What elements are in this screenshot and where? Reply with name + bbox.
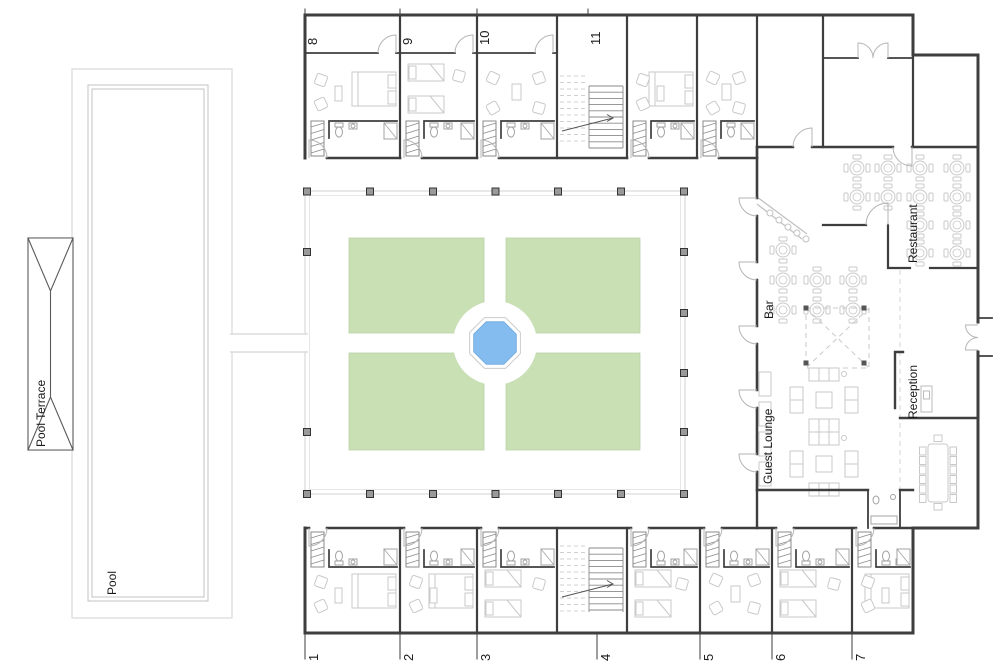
toilet-tank [507, 561, 515, 565]
furniture [636, 602, 643, 615]
chair [532, 577, 545, 590]
furniture [335, 588, 342, 603]
chair [827, 577, 840, 590]
pool-outline-inner [92, 89, 204, 597]
stair-dashed-flight [560, 76, 588, 141]
stair-treads [589, 86, 623, 148]
furniture [816, 392, 832, 408]
door-arc [893, 147, 912, 166]
guest-room [406, 532, 474, 613]
chair [675, 577, 688, 590]
guest-room [706, 532, 769, 616]
toilet-tank [727, 123, 735, 127]
toilet [883, 551, 890, 561]
courtyard [230, 188, 688, 498]
sink [351, 560, 355, 564]
stair-direction-arrow [562, 581, 613, 598]
column [430, 491, 437, 498]
chair [314, 73, 328, 87]
chair [747, 601, 760, 614]
sink [818, 560, 822, 564]
room-number-label: 5 [701, 654, 716, 661]
furniture [920, 476, 927, 484]
chair [732, 71, 746, 85]
sink [523, 124, 527, 128]
chair [532, 71, 546, 85]
door-arc [739, 262, 757, 280]
furniture [950, 476, 957, 484]
side-table [842, 372, 847, 377]
chair [452, 69, 465, 82]
column [555, 188, 562, 195]
furniture [920, 466, 927, 474]
toilet [431, 127, 438, 137]
furniture [809, 368, 839, 381]
chair [732, 101, 745, 114]
furniture [920, 485, 927, 493]
furniture [781, 602, 788, 615]
column [304, 188, 311, 195]
toilet-tank [657, 561, 665, 565]
column [367, 188, 374, 195]
guest-rooms-top-wing [311, 64, 754, 156]
skylight-post [862, 361, 867, 366]
chair [709, 573, 724, 588]
sink [523, 560, 527, 564]
furniture [934, 504, 942, 511]
door-arc [455, 35, 473, 53]
furniture [409, 98, 416, 111]
furniture [465, 593, 473, 606]
room-number-label: 4 [598, 654, 613, 661]
chair [314, 97, 329, 112]
column [681, 370, 688, 377]
chair [409, 575, 423, 589]
conference-table [920, 435, 957, 510]
chair [532, 101, 545, 114]
room-number-label: 6 [773, 654, 788, 661]
restaurant-table [944, 212, 970, 238]
sink [446, 124, 450, 128]
chair [314, 599, 329, 614]
room-number-label: 7 [853, 654, 868, 661]
toilet [728, 127, 735, 137]
bar-table [840, 267, 866, 293]
room-number-label: 11 [588, 32, 603, 46]
column [304, 249, 311, 256]
furniture [950, 466, 957, 474]
guest-room [633, 532, 697, 617]
door-arc [793, 128, 812, 147]
toilet-tank [430, 123, 438, 127]
sink [673, 560, 677, 564]
column [681, 429, 688, 436]
column [555, 491, 562, 498]
door-arc [378, 35, 396, 53]
toilet-tank [657, 123, 665, 127]
reception-chair [924, 391, 930, 399]
door-arc [858, 43, 873, 58]
furniture [882, 588, 889, 603]
furniture [335, 86, 342, 101]
furniture [685, 91, 693, 104]
furniture [901, 577, 909, 590]
furniture [512, 84, 521, 100]
column [304, 429, 311, 436]
bar-stool [785, 224, 791, 230]
furniture [388, 91, 396, 104]
toilet-tank [335, 123, 343, 127]
room-number-label: 10 [477, 31, 492, 45]
side-table [842, 436, 847, 441]
door-arc [966, 338, 979, 351]
toilet-tank [882, 561, 890, 565]
toilet [658, 551, 665, 561]
bar-table [804, 267, 830, 293]
furniture [657, 86, 664, 101]
furniture [388, 75, 396, 88]
sink [746, 560, 750, 564]
guest-room [406, 64, 474, 156]
sink [351, 124, 355, 128]
wall [823, 15, 913, 147]
guest-room [858, 532, 910, 613]
furniture [636, 572, 643, 585]
furniture [685, 75, 693, 88]
restaurant-table [944, 240, 970, 266]
toilet [873, 496, 879, 504]
guest-room [311, 532, 397, 613]
bar-stool [803, 236, 809, 242]
toilet [658, 127, 665, 137]
door-arc [873, 43, 888, 58]
skylight-void [806, 308, 869, 368]
wall [305, 633, 852, 659]
door-arc [739, 326, 757, 344]
column [618, 491, 625, 498]
door-arc [739, 390, 757, 408]
furniture [486, 572, 493, 585]
label-pool: Pool [105, 571, 119, 595]
toilet [508, 551, 515, 561]
furniture [920, 495, 927, 503]
column [618, 188, 625, 195]
toilet-tank [802, 561, 810, 565]
floor-plan: Pool Pool Terrace Restaurant Bar Guest L… [0, 0, 1000, 667]
toilet [803, 551, 810, 561]
column [492, 491, 499, 498]
furniture [928, 444, 948, 502]
furniture [816, 456, 832, 472]
room-number-label: 8 [305, 38, 320, 45]
sink [891, 495, 896, 500]
skylight-post [804, 306, 809, 311]
furniture [950, 457, 957, 465]
restaurant-table [944, 155, 970, 181]
guest-room [311, 72, 397, 156]
furniture [950, 485, 957, 493]
toilet-tank [507, 123, 515, 127]
column [681, 491, 688, 498]
pool-outline-outer [88, 85, 208, 601]
furniture [759, 372, 771, 396]
staircases [560, 76, 623, 612]
furniture [920, 457, 927, 465]
furniture [486, 602, 493, 615]
floor-plan-canvas: Pool Pool Terrace Restaurant Bar Guest L… [0, 0, 1000, 667]
column [681, 249, 688, 256]
furniture [950, 495, 957, 503]
label-restaurant: Restaurant [906, 204, 920, 263]
label-guest-lounge: Guest Lounge [761, 408, 775, 484]
chair [708, 600, 723, 615]
toilet-tank [730, 561, 738, 565]
toilet-tank [430, 561, 438, 565]
restaurant-table [844, 155, 870, 181]
furniture [465, 577, 473, 590]
restaurant-table [944, 184, 970, 210]
sink [446, 560, 450, 564]
sink [673, 124, 677, 128]
bar-table [770, 237, 796, 263]
skylight-post [862, 306, 867, 311]
chair [706, 71, 721, 86]
column [304, 491, 311, 498]
furniture [950, 447, 957, 455]
door-arc [739, 198, 757, 216]
stair-treads [589, 548, 623, 612]
column [430, 188, 437, 195]
bench [871, 516, 897, 524]
bar-stool [776, 217, 782, 223]
furniture [809, 419, 839, 432]
chair [705, 100, 720, 115]
bar-table [770, 267, 796, 293]
toilet [431, 551, 438, 561]
door-arc [966, 325, 979, 338]
guest-room [778, 532, 849, 617]
furniture [934, 435, 942, 442]
chair [486, 71, 501, 86]
bar-stool [767, 210, 773, 216]
room-number-label: 2 [401, 654, 416, 661]
chair [636, 97, 651, 112]
toilet [336, 551, 343, 561]
wall [978, 318, 992, 356]
furniture [722, 84, 731, 100]
chair [314, 575, 328, 589]
furniture [901, 593, 909, 606]
label-bar: Bar [762, 300, 776, 319]
guest-room [483, 71, 554, 156]
label-pool-terrace: Pool Terrace [34, 380, 48, 447]
chair [636, 73, 650, 87]
toilet-tank [335, 561, 343, 565]
column [367, 491, 374, 498]
column [681, 310, 688, 317]
room-number-label: 1 [306, 654, 321, 661]
furniture [781, 572, 788, 585]
label-reception: Reception [906, 365, 920, 419]
room-number-label: 3 [478, 654, 493, 661]
door-arc [739, 454, 757, 472]
stair-dashed-flight [560, 546, 588, 611]
chair [409, 599, 424, 614]
room-number-label: 9 [400, 38, 415, 45]
toilet [508, 127, 515, 137]
toilet [336, 127, 343, 137]
fountain-water [474, 322, 517, 365]
pool-area [28, 69, 232, 618]
toilet [731, 551, 738, 561]
skylight-post [804, 361, 809, 366]
door-arc [535, 35, 553, 53]
bar-stool [794, 230, 800, 236]
restaurant-table [907, 155, 933, 181]
furniture [388, 593, 396, 606]
furniture [430, 588, 437, 603]
chair [485, 100, 500, 115]
furniture [388, 577, 396, 590]
furniture [920, 447, 927, 455]
column [681, 188, 688, 195]
restaurant-table [844, 184, 870, 210]
furniture [409, 66, 416, 79]
column [492, 188, 499, 195]
walkway-gap [230, 335, 308, 351]
furniture [731, 586, 740, 602]
guest-room [483, 532, 554, 617]
chair [747, 573, 761, 587]
furniture [809, 432, 839, 445]
